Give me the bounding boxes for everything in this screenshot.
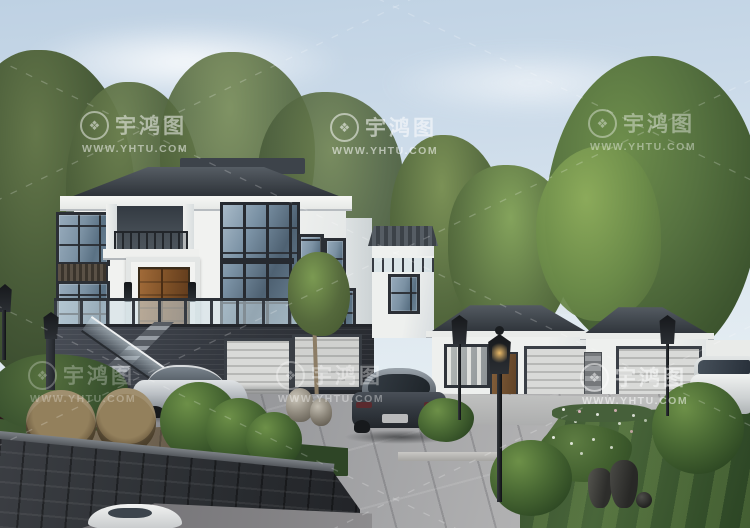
flower-strip-blooms bbox=[562, 408, 565, 411]
taillight bbox=[356, 402, 372, 408]
balcony-railing bbox=[114, 231, 188, 250]
pergola-canopy bbox=[368, 226, 438, 246]
upper-left-window bbox=[56, 212, 110, 266]
wheel bbox=[354, 420, 370, 433]
tower-glass-railing bbox=[372, 256, 434, 272]
flower-strip bbox=[552, 404, 652, 422]
garden-sphere bbox=[636, 492, 652, 508]
car-windshield bbox=[108, 508, 152, 518]
curtain-wall-floor-band bbox=[220, 258, 294, 264]
stair-lamp-pillar bbox=[46, 338, 55, 390]
boxwood-sphere bbox=[490, 440, 572, 516]
license-plate bbox=[382, 414, 408, 423]
garage-wing-window bbox=[444, 344, 490, 388]
decorative-pot bbox=[310, 398, 332, 426]
garden-jar bbox=[588, 468, 612, 508]
street-lamp-pole bbox=[666, 342, 669, 416]
broadleaf-tree bbox=[536, 146, 661, 321]
roof-fascia bbox=[60, 196, 352, 211]
villa-rendering-scene: ❖ 宇鸿图 WWW.YHTU.COM ❖ 宇鸿图 WWW.YHTU.COM ❖ … bbox=[0, 0, 750, 528]
lamp-glow bbox=[492, 342, 507, 364]
lamp-finial bbox=[495, 326, 504, 335]
wood-slat-panel bbox=[56, 262, 108, 283]
white-suv-windows bbox=[698, 360, 750, 374]
shrub-blooms bbox=[552, 436, 555, 439]
tower-window bbox=[388, 274, 420, 314]
edge-lamp-pole bbox=[2, 310, 6, 360]
ornamental-tree bbox=[288, 252, 350, 336]
street-lamp-pole bbox=[458, 342, 461, 420]
garden-jar bbox=[610, 460, 638, 508]
basement-garage-door bbox=[292, 334, 362, 390]
street-lamp-pole bbox=[497, 370, 502, 502]
